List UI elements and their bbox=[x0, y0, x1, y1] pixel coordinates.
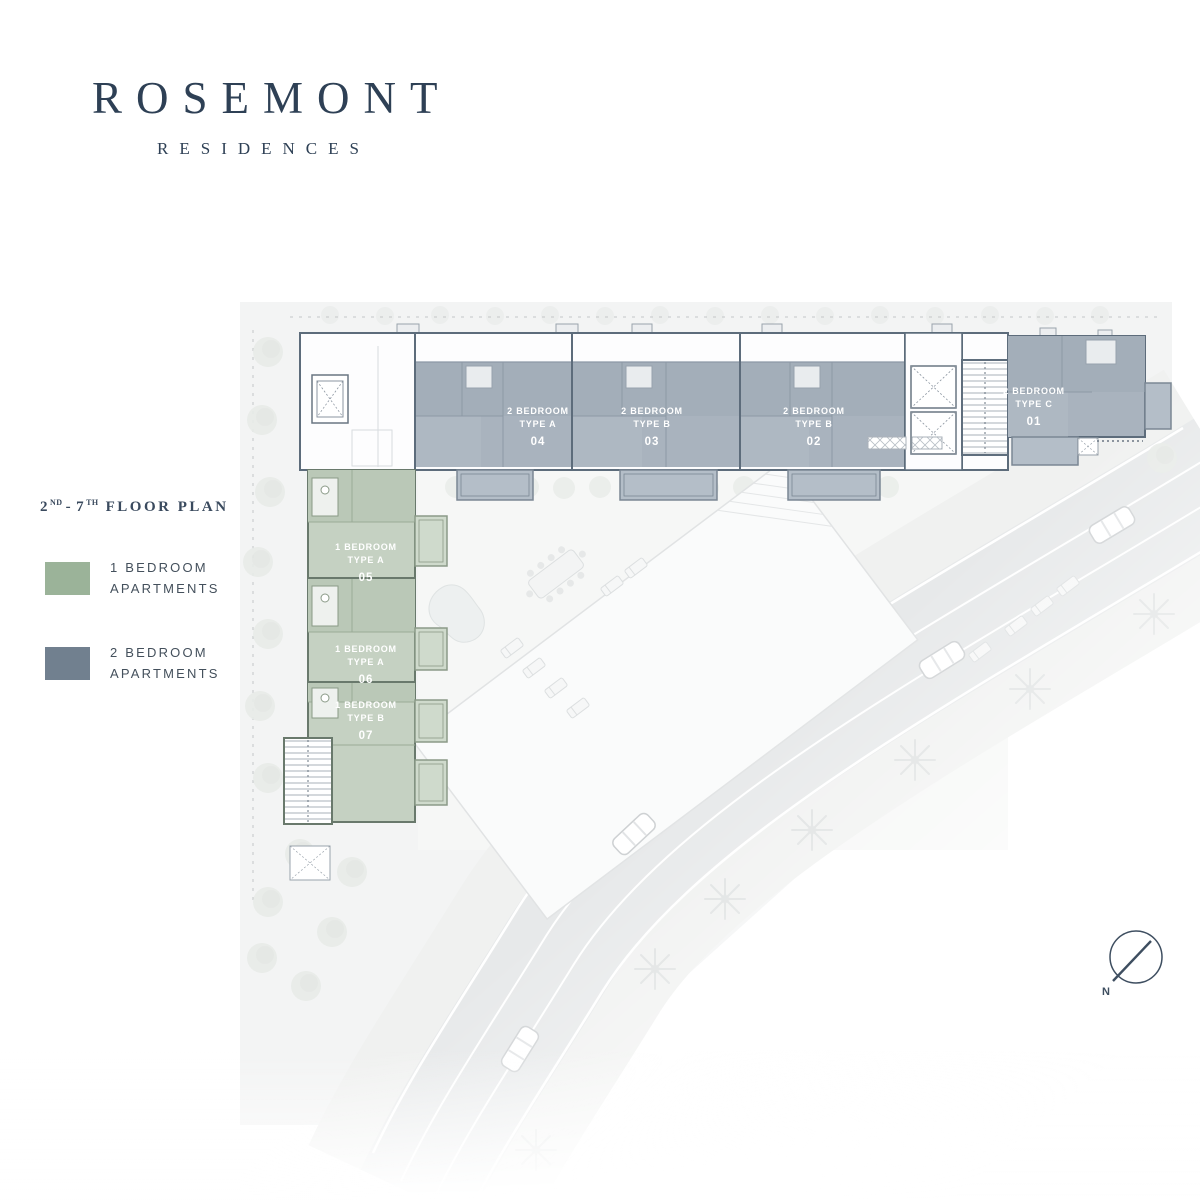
staircase-west bbox=[284, 738, 332, 880]
legend-label-2-bedroom: 2 BEDROOM APARTMENTS bbox=[110, 643, 220, 685]
svg-text:1 BEDROOM: 1 BEDROOM bbox=[335, 644, 397, 654]
legend-label-1-bedroom: 1 BEDROOM APARTMENTS bbox=[110, 558, 220, 600]
logo: ROSEMONT RESIDENCES bbox=[92, 72, 424, 159]
compass-north-label: N bbox=[1102, 986, 1110, 998]
staircase-main bbox=[962, 360, 1008, 455]
svg-text:TYPE B: TYPE B bbox=[347, 713, 384, 723]
logo-name: ROSEMONT bbox=[92, 72, 438, 124]
legend-swatch-1-bedroom bbox=[45, 562, 90, 595]
svg-text:07: 07 bbox=[359, 730, 374, 742]
svg-text:2 BEDROOM: 2 BEDROOM bbox=[621, 406, 683, 416]
svg-text:TYPE B: TYPE B bbox=[795, 419, 832, 429]
fade-bottom bbox=[0, 1050, 1200, 1200]
svg-text:05: 05 bbox=[359, 572, 374, 584]
svg-text:1 BEDROOM: 1 BEDROOM bbox=[335, 700, 397, 710]
svg-text:TYPE C: TYPE C bbox=[1015, 399, 1052, 409]
site-plan-svg: 2 BEDROOM TYPE A 04 2 BEDROOM TYPE B 03 … bbox=[0, 0, 1200, 1200]
svg-text:01: 01 bbox=[1027, 416, 1042, 428]
svg-text:TYPE A: TYPE A bbox=[348, 657, 385, 667]
svg-text:2 BEDROOM: 2 BEDROOM bbox=[1003, 386, 1065, 396]
legend-item-2-bedroom: 2 BEDROOM APARTMENTS bbox=[45, 643, 220, 685]
floor-plan-title: 2ND-7THFLOOR PLAN bbox=[40, 498, 229, 516]
floor-plan-page: 2 BEDROOM TYPE A 04 2 BEDROOM TYPE B 03 … bbox=[0, 0, 1200, 1200]
svg-text:TYPE A: TYPE A bbox=[520, 419, 557, 429]
svg-text:1 BEDROOM: 1 BEDROOM bbox=[335, 542, 397, 552]
top-bar-balconies bbox=[457, 470, 880, 500]
left-bar-balconies bbox=[415, 516, 447, 805]
svg-text:06: 06 bbox=[359, 674, 374, 686]
svg-text:2 BEDROOM: 2 BEDROOM bbox=[507, 406, 569, 416]
svg-text:2 BEDROOM: 2 BEDROOM bbox=[783, 406, 845, 416]
svg-text:TYPE B: TYPE B bbox=[633, 419, 670, 429]
svg-text:TYPE A: TYPE A bbox=[348, 555, 385, 565]
walkway-hatch bbox=[868, 437, 942, 449]
svg-text:03: 03 bbox=[645, 436, 660, 448]
legend-swatch-2-bedroom bbox=[45, 647, 90, 680]
svg-text:02: 02 bbox=[807, 436, 822, 448]
logo-tagline: RESIDENCES bbox=[92, 139, 435, 159]
legend-item-1-bedroom: 1 BEDROOM APARTMENTS bbox=[45, 558, 220, 600]
svg-text:04: 04 bbox=[531, 436, 546, 448]
